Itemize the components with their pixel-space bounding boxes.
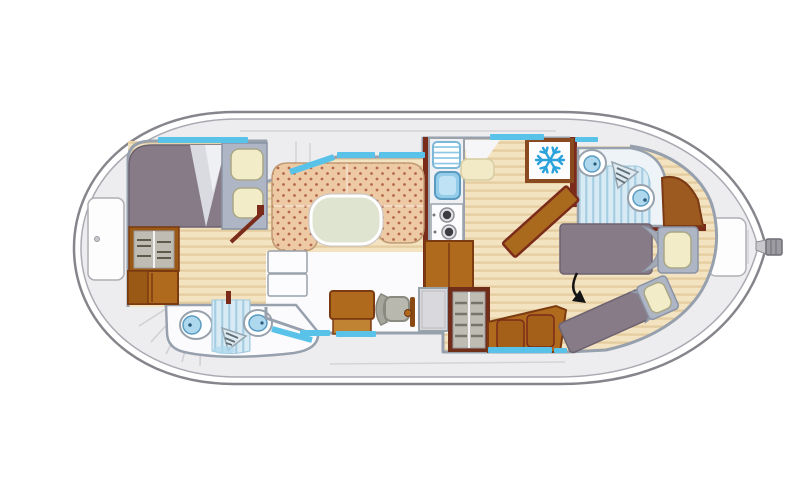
front-wardrobe <box>129 227 179 271</box>
window <box>379 152 425 158</box>
worktop <box>461 159 494 180</box>
aft-toilet-icon <box>628 185 654 211</box>
floorplan-canvas <box>0 0 810 500</box>
front-bathroom-door <box>226 291 231 304</box>
window <box>575 137 598 142</box>
shower-water <box>213 346 235 354</box>
front-double-bed <box>129 143 267 229</box>
bow-deck-locker <box>88 198 124 280</box>
aft-sink-icon <box>578 150 606 176</box>
locker-latch <box>95 237 100 242</box>
helm-seat <box>376 294 409 325</box>
aft-bed-upper <box>560 224 698 274</box>
salon-table <box>311 196 381 244</box>
companionway-step <box>268 251 307 273</box>
window <box>158 137 248 143</box>
shelf-cabinet <box>448 287 490 352</box>
window <box>488 347 552 353</box>
stove-icon <box>431 204 463 241</box>
companionway-step <box>268 274 307 296</box>
window <box>336 331 376 337</box>
boat-floorplan <box>0 0 810 500</box>
pillow <box>664 232 691 268</box>
fridge <box>527 140 572 181</box>
front-sink-icon <box>244 310 272 336</box>
window <box>490 134 544 140</box>
window <box>554 348 567 353</box>
helm-bench <box>330 291 374 319</box>
window <box>337 152 375 158</box>
pillow <box>231 149 263 180</box>
galley-sink-icon <box>435 172 460 199</box>
helm-console <box>419 288 448 331</box>
front-toilet-icon <box>180 311 212 339</box>
front-cabinet <box>128 271 178 304</box>
draining-board <box>433 142 460 168</box>
